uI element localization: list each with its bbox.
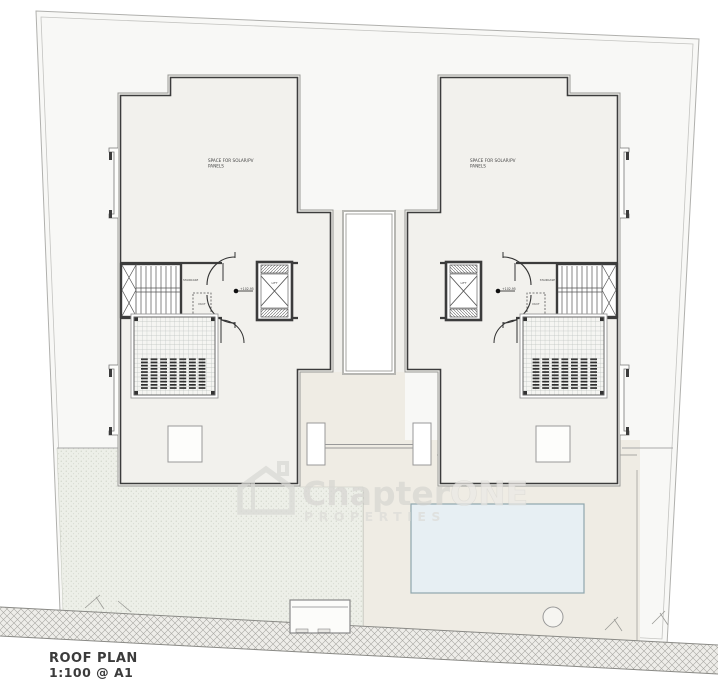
lift-label-left: LIFT — [271, 281, 277, 285]
watermark-tagline: PROPERTIES — [304, 509, 446, 524]
right-unit-plan — [405, 75, 629, 486]
watermark-brand-accent: ONE — [450, 474, 528, 513]
drawing-title: ROOF PLAN — [49, 651, 138, 666]
duct-label-right: DUCT — [532, 302, 540, 306]
solar-label-right-line1: SPACE FOR SOLAR/PV — [470, 158, 516, 163]
lightwell — [343, 211, 395, 374]
title-block: ROOF PLAN 1:100 @ A1 — [49, 651, 138, 680]
watermark-brand-primary: Chapter — [302, 474, 451, 513]
duct-label-left: DUCT — [198, 302, 206, 306]
roof-plan-sheet: SPACE FOR SOLAR/PV PANELS STAIRCASE DUCT… — [0, 0, 718, 682]
lift-label-right: LIFT — [460, 281, 466, 285]
watermark-brand: ChapterONE — [302, 474, 528, 513]
drawing-scale: 1:100 @ A1 — [49, 665, 133, 680]
roof-plan-drawing: SPACE FOR SOLAR/PV PANELS STAIRCASE DUCT… — [0, 0, 718, 682]
level-label-right: +102.95 — [502, 287, 516, 291]
staircase-label-right: STAIRCASE — [540, 278, 555, 282]
solar-label-right-line2: PANELS — [470, 164, 486, 169]
garden-structure — [290, 600, 350, 633]
solar-label-left-line2: PANELS — [208, 164, 224, 169]
staircase-label-left: STAIRCASE — [183, 278, 198, 282]
left-unit-plan — [109, 75, 333, 486]
level-label-left: +102.95 — [240, 287, 254, 291]
solar-label-left-line1: SPACE FOR SOLAR/PV — [208, 158, 254, 163]
garden-feature-circle — [543, 607, 563, 627]
